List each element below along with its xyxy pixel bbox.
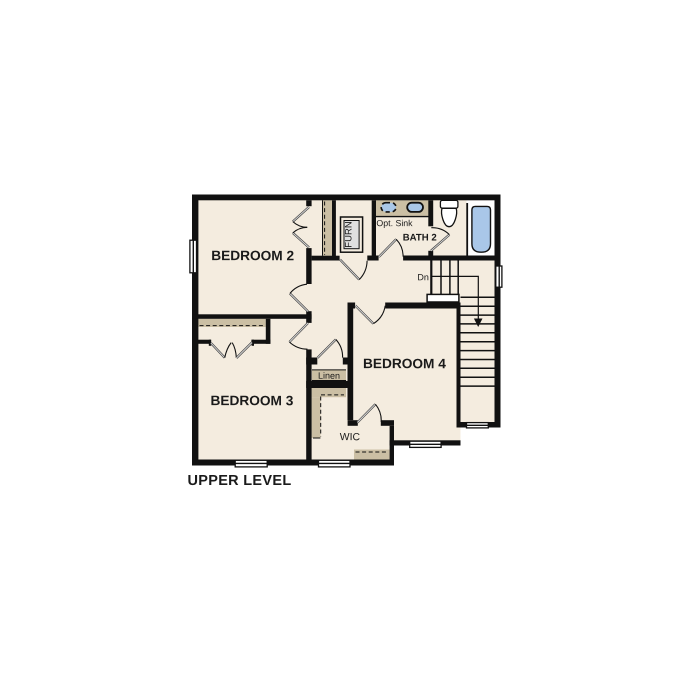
svg-text:WIC: WIC (340, 432, 361, 443)
svg-text:UPPER LEVEL: UPPER LEVEL (187, 473, 291, 489)
svg-text:BEDROOM 3: BEDROOM 3 (210, 393, 293, 408)
svg-text:FURN: FURN (344, 221, 355, 248)
svg-text:BEDROOM 4: BEDROOM 4 (363, 356, 446, 371)
svg-text:Dn: Dn (417, 272, 429, 282)
svg-text:BATH 2: BATH 2 (403, 232, 437, 243)
svg-text:Linen: Linen (318, 371, 340, 381)
svg-text:Opt. Sink: Opt. Sink (376, 218, 413, 228)
svg-text:BEDROOM 2: BEDROOM 2 (211, 248, 294, 263)
